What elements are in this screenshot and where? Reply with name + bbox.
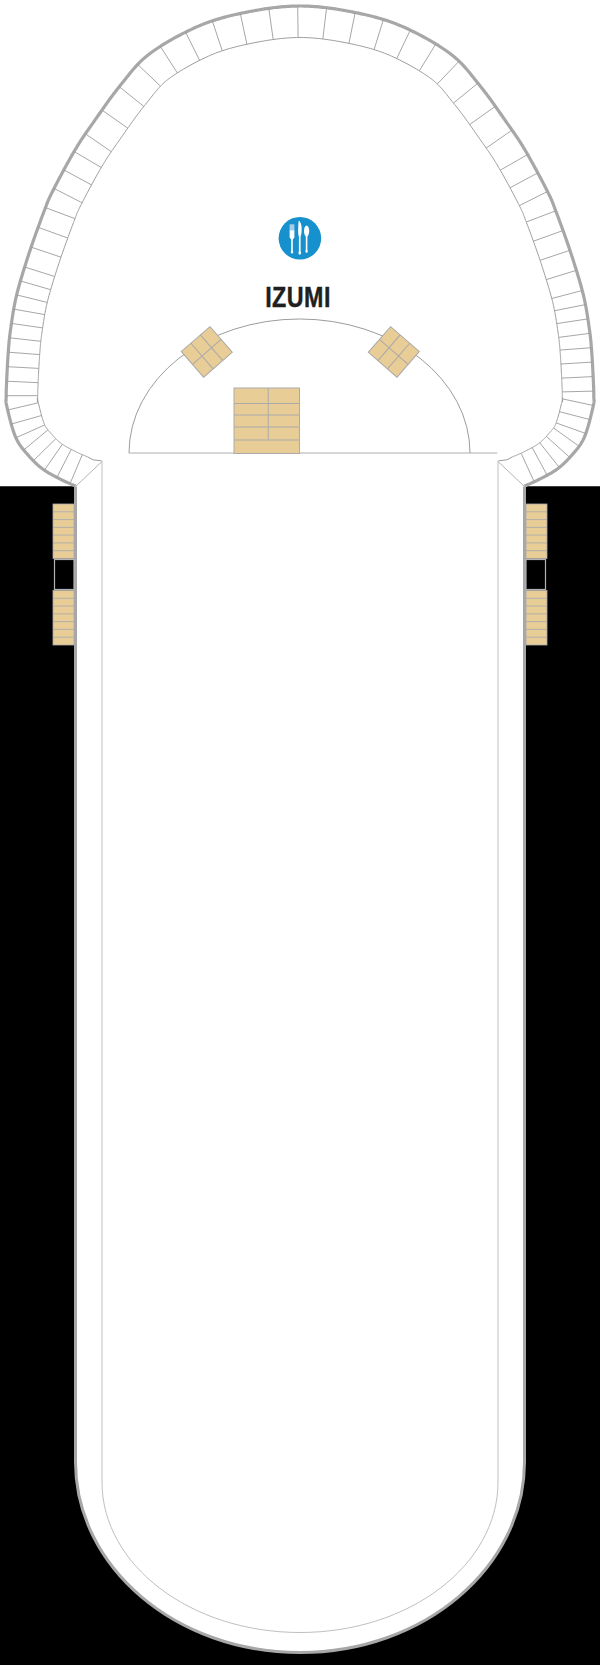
svg-text:IZUMI: IZUMI [265,280,331,313]
